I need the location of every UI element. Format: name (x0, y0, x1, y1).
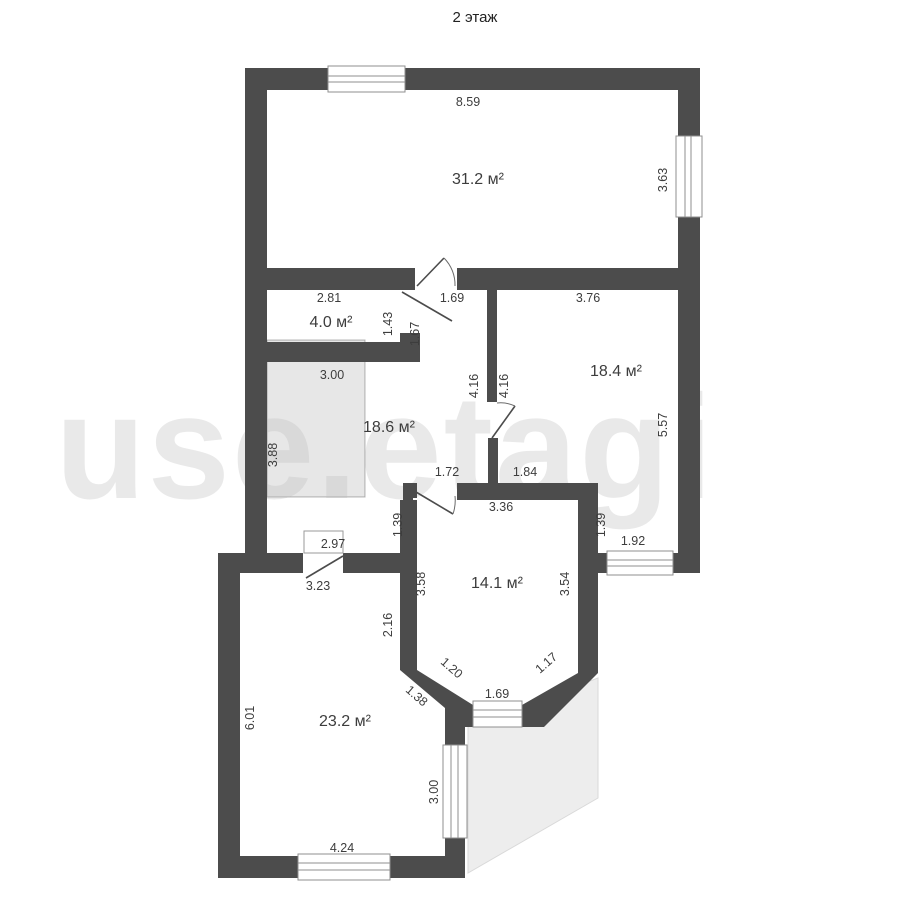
wall-bedroom2-left (218, 573, 240, 878)
dim-hall-bottom: 2.97 (321, 537, 345, 551)
wall-living-bottom-right (457, 268, 700, 290)
dim-bay-left: 1.20 (438, 655, 466, 682)
dim-bay-right: 1.17 (533, 650, 561, 677)
dim-bay-window: 1.69 (485, 687, 509, 701)
window-bay (473, 701, 522, 727)
door-living (417, 258, 455, 286)
window-living-right (676, 136, 702, 217)
dim-wc-width: 2.81 (317, 291, 341, 305)
dim-bedroom1-wall: 4.16 (497, 374, 511, 398)
wall-wc-bottom (262, 342, 420, 362)
wall-bedroom1-left-lower (488, 438, 498, 483)
wall-top (245, 68, 700, 90)
dim-living-window-right: 3.63 (656, 168, 670, 192)
wall-bedroom1-left-upper (487, 290, 497, 402)
dim-pass-left: 1.72 (435, 465, 459, 479)
dim-hall-wall: 4.16 (467, 374, 481, 398)
window-bedroom2-right (443, 745, 467, 838)
room-label-wc: 4.0 м² (309, 314, 353, 331)
wall-living-bottom-left (245, 268, 415, 290)
wall-hall-bottom-right (457, 483, 598, 500)
dim-bedroom2-right-upper: 2.16 (381, 613, 395, 637)
dim-stair-width: 3.00 (320, 368, 344, 382)
dim-living-width: 8.59 (456, 95, 480, 109)
floor-title: 2 этаж (453, 9, 498, 26)
wall-left-upper (245, 90, 267, 573)
window-top (328, 66, 405, 92)
dim-wc-door: 1.67 (408, 322, 422, 346)
watermark-text: use.etagi (55, 365, 715, 530)
room-label-hall: 18.6 м² (363, 419, 416, 436)
dim-bedroom2-left: 6.01 (243, 706, 257, 730)
floor-plan-page: 2 этаж use.etagi (0, 0, 900, 900)
dim-bedroom1-window: 1.92 (621, 534, 645, 548)
dim-drop-right: 1.39 (594, 513, 608, 537)
room-label-bedroom2: 23.2 м² (319, 713, 372, 730)
dim-bedroom1-right: 5.57 (656, 413, 670, 437)
dim-bedroom2-top: 3.23 (306, 579, 330, 593)
wall-hall18-bottom-right (343, 553, 417, 573)
wall-hall18-bottom-left (218, 553, 303, 573)
dim-pass-right: 1.84 (513, 465, 537, 479)
dim-living-door: 1.69 (440, 291, 464, 305)
dim-bedroom2-bottom: 4.24 (330, 841, 354, 855)
window-bedroom2-bottom (298, 854, 390, 880)
floor-plan-svg: 2 этаж use.etagi (0, 0, 900, 900)
dim-stair-height: 3.88 (266, 443, 280, 467)
wall-bedroom2-right-lower (445, 838, 465, 878)
room-label-middle: 14.1 м² (471, 575, 524, 592)
dim-bedroom2-window-right: 3.00 (427, 780, 441, 804)
room-label-living: 31.2 м² (452, 171, 505, 188)
dim-wc-height: 1.43 (381, 312, 395, 336)
dim-middleroom-left: 3.58 (414, 572, 428, 596)
dim-bedroom1-top: 3.76 (576, 291, 600, 305)
dim-drop-left: 1.39 (391, 513, 405, 537)
dim-middleroom-right: 3.54 (558, 572, 572, 596)
window-bedroom1-bottom (607, 551, 673, 575)
dim-middleroom-top: 3.36 (489, 500, 513, 514)
room-label-bedroom1: 18.4 м² (590, 363, 643, 380)
